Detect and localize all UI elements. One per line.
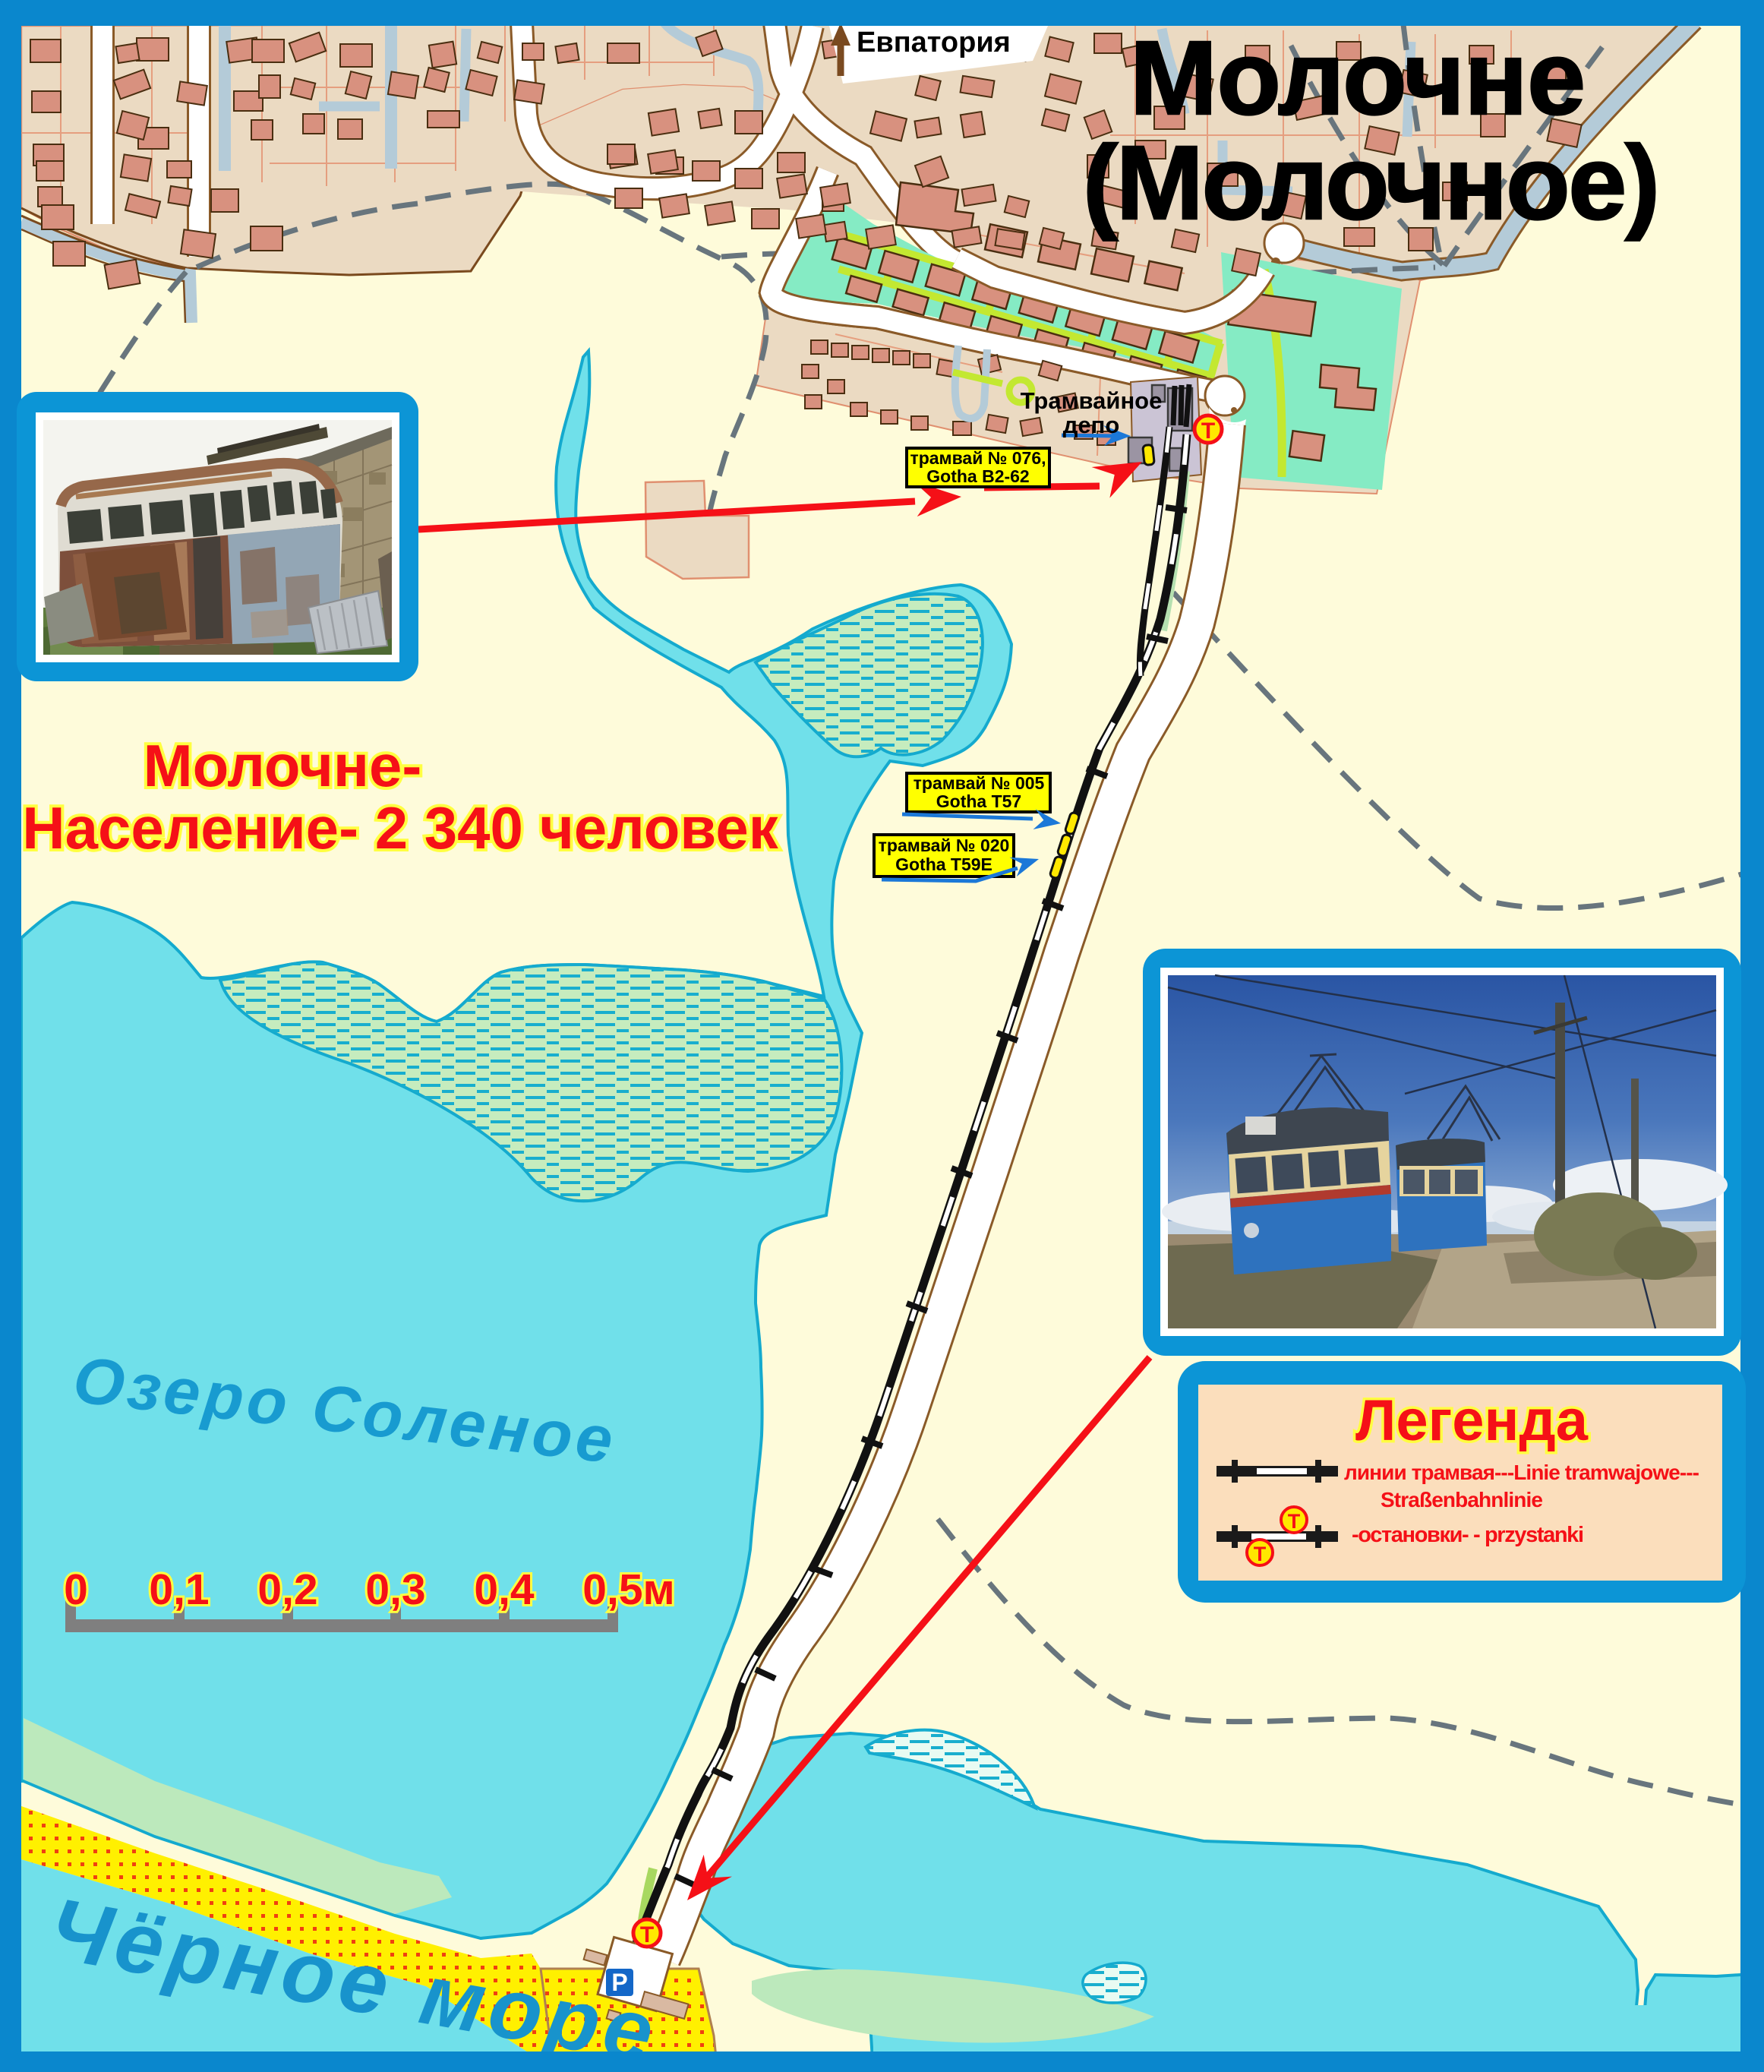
svg-text:Straßenbahnlinie: Straßenbahnlinie	[1381, 1488, 1543, 1511]
svg-text:T: T	[1254, 1543, 1267, 1565]
svg-text:0: 0	[64, 1565, 88, 1614]
svg-text:Трамвайное: Трамвайное	[1021, 387, 1163, 414]
svg-text:Gotha B2-62: Gotha B2-62	[926, 466, 1029, 486]
svg-text:0,2: 0,2	[257, 1565, 317, 1614]
svg-text:Легенда: Легенда	[1355, 1388, 1589, 1453]
svg-text:Молочне: Молочне	[1130, 20, 1586, 137]
svg-text:-остановки- - przystanki: -остановки- - przystanki	[1352, 1523, 1584, 1547]
svg-text:Население- 2 340 человек: Население- 2 340 человек	[22, 794, 778, 861]
svg-text:0,5м: 0,5м	[582, 1565, 674, 1614]
svg-text:трамвай № 020: трамвай № 020	[879, 835, 1010, 855]
svg-text:T: T	[1288, 1510, 1301, 1533]
svg-text:Gotha T57: Gotha T57	[936, 791, 1021, 811]
svg-text:T: T	[1201, 419, 1215, 444]
svg-text:0,1: 0,1	[149, 1565, 209, 1614]
svg-text:линии трамвая---Linie tramwajo: линии трамвая---Linie tramwajowe---	[1344, 1461, 1699, 1484]
svg-text:T: T	[640, 1922, 654, 1947]
svg-text:(Молочное): (Молочное)	[1083, 125, 1660, 242]
svg-text:трамвай № 076,: трамвай № 076,	[910, 448, 1046, 468]
svg-text:депо: депо	[1063, 412, 1120, 438]
svg-text:Молочне-: Молочне-	[144, 732, 422, 799]
svg-text:0,3: 0,3	[365, 1565, 425, 1614]
svg-text:Евпатория: Евпатория	[857, 27, 1011, 58]
svg-text:трамвай № 005: трамвай № 005	[914, 773, 1045, 793]
svg-text:Gotha T59E: Gotha T59E	[895, 854, 992, 874]
svg-text:0,4: 0,4	[474, 1565, 535, 1614]
